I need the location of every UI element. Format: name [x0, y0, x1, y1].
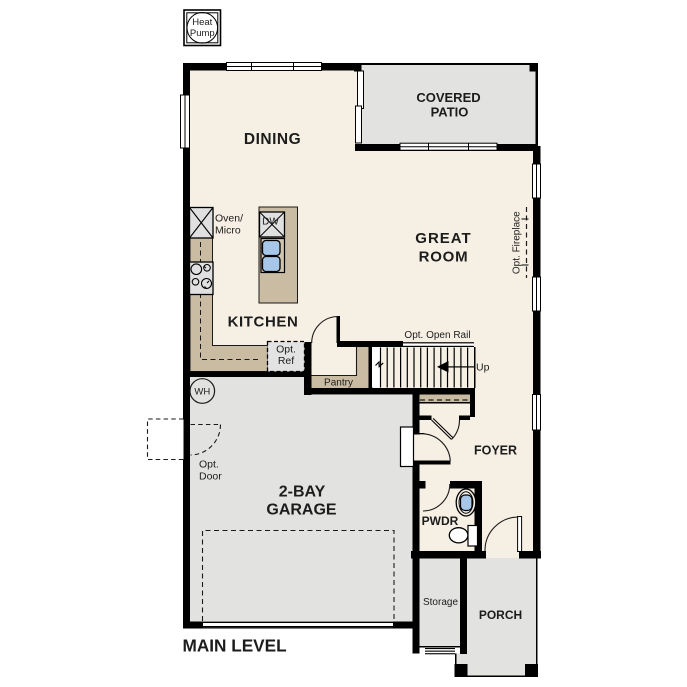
svg-text:Oven/: Oven/	[215, 213, 243, 225]
svg-text:DW: DW	[262, 217, 279, 228]
svg-text:GARAGE: GARAGE	[266, 502, 337, 519]
svg-text:2-BAY: 2-BAY	[279, 484, 326, 501]
svg-text:Opt. Fireplace: Opt. Fireplace	[512, 211, 523, 274]
svg-text:GREAT: GREAT	[415, 230, 471, 247]
svg-text:DINING: DINING	[244, 131, 301, 148]
svg-text:PWDR: PWDR	[422, 514, 459, 528]
svg-text:Opt. Open Rail: Opt. Open Rail	[404, 330, 470, 341]
svg-text:Ref: Ref	[278, 355, 294, 367]
svg-text:Pump: Pump	[190, 28, 215, 39]
svg-text:Opt.: Opt.	[276, 343, 296, 355]
svg-text:FOYER: FOYER	[474, 444, 517, 458]
svg-text:Opt.: Opt.	[199, 459, 219, 471]
svg-text:COVERED: COVERED	[416, 90, 480, 105]
svg-text:Micro: Micro	[215, 225, 241, 237]
svg-text:Door: Door	[199, 471, 222, 483]
svg-text:MAIN LEVEL: MAIN LEVEL	[183, 636, 287, 656]
svg-text:Heat: Heat	[192, 17, 212, 28]
svg-text:Storage: Storage	[423, 597, 458, 608]
svg-text:PATIO: PATIO	[431, 105, 469, 120]
svg-text:ROOM: ROOM	[419, 248, 469, 265]
svg-text:WH: WH	[194, 387, 210, 398]
svg-text:KITCHEN: KITCHEN	[228, 314, 299, 331]
svg-text:Up: Up	[476, 362, 490, 374]
svg-text:Pantry: Pantry	[324, 378, 353, 389]
svg-text:PORCH: PORCH	[479, 608, 522, 622]
